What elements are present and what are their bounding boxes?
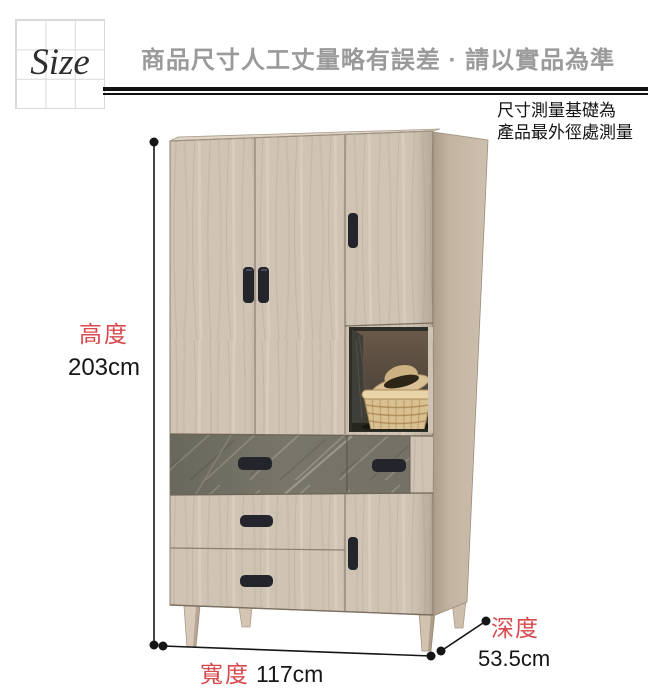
width-label-cn: 寬度 — [200, 661, 250, 687]
lower-right-door-handle — [348, 537, 358, 570]
height-dimension-line — [150, 138, 159, 650]
center-door-handle — [258, 267, 269, 303]
open-shelf-cubby — [349, 327, 434, 433]
product-size-diagram: Size 商品尺寸人工丈量略有誤差 · 請以實品為準 尺寸測量基礎為 產品最外徑… — [0, 0, 650, 700]
height-value: 203cm — [56, 354, 152, 382]
width-dimension-label: 寬度117cm — [200, 655, 323, 689]
wardrobe-side-panel — [433, 132, 488, 616]
height-label-cn: 高度 — [56, 315, 152, 349]
depth-label-cn: 深度 — [491, 609, 588, 643]
left-door-handle — [243, 267, 254, 303]
depth-dimension-label: 深度 53.5cm — [478, 609, 588, 672]
wicker-basket — [362, 390, 432, 430]
wardrobe-front — [170, 131, 434, 616]
drawer2-handle — [240, 575, 273, 587]
stone-drawer-right-handle — [372, 459, 406, 472]
drawer1-handle — [240, 515, 273, 527]
depth-value: 53.5cm — [478, 646, 588, 672]
height-dimension-label: 高度 203cm — [56, 315, 152, 382]
upper-right-door-handle — [348, 213, 358, 248]
width-value: 117cm — [256, 661, 323, 687]
stone-drawer-left-handle — [238, 457, 272, 470]
